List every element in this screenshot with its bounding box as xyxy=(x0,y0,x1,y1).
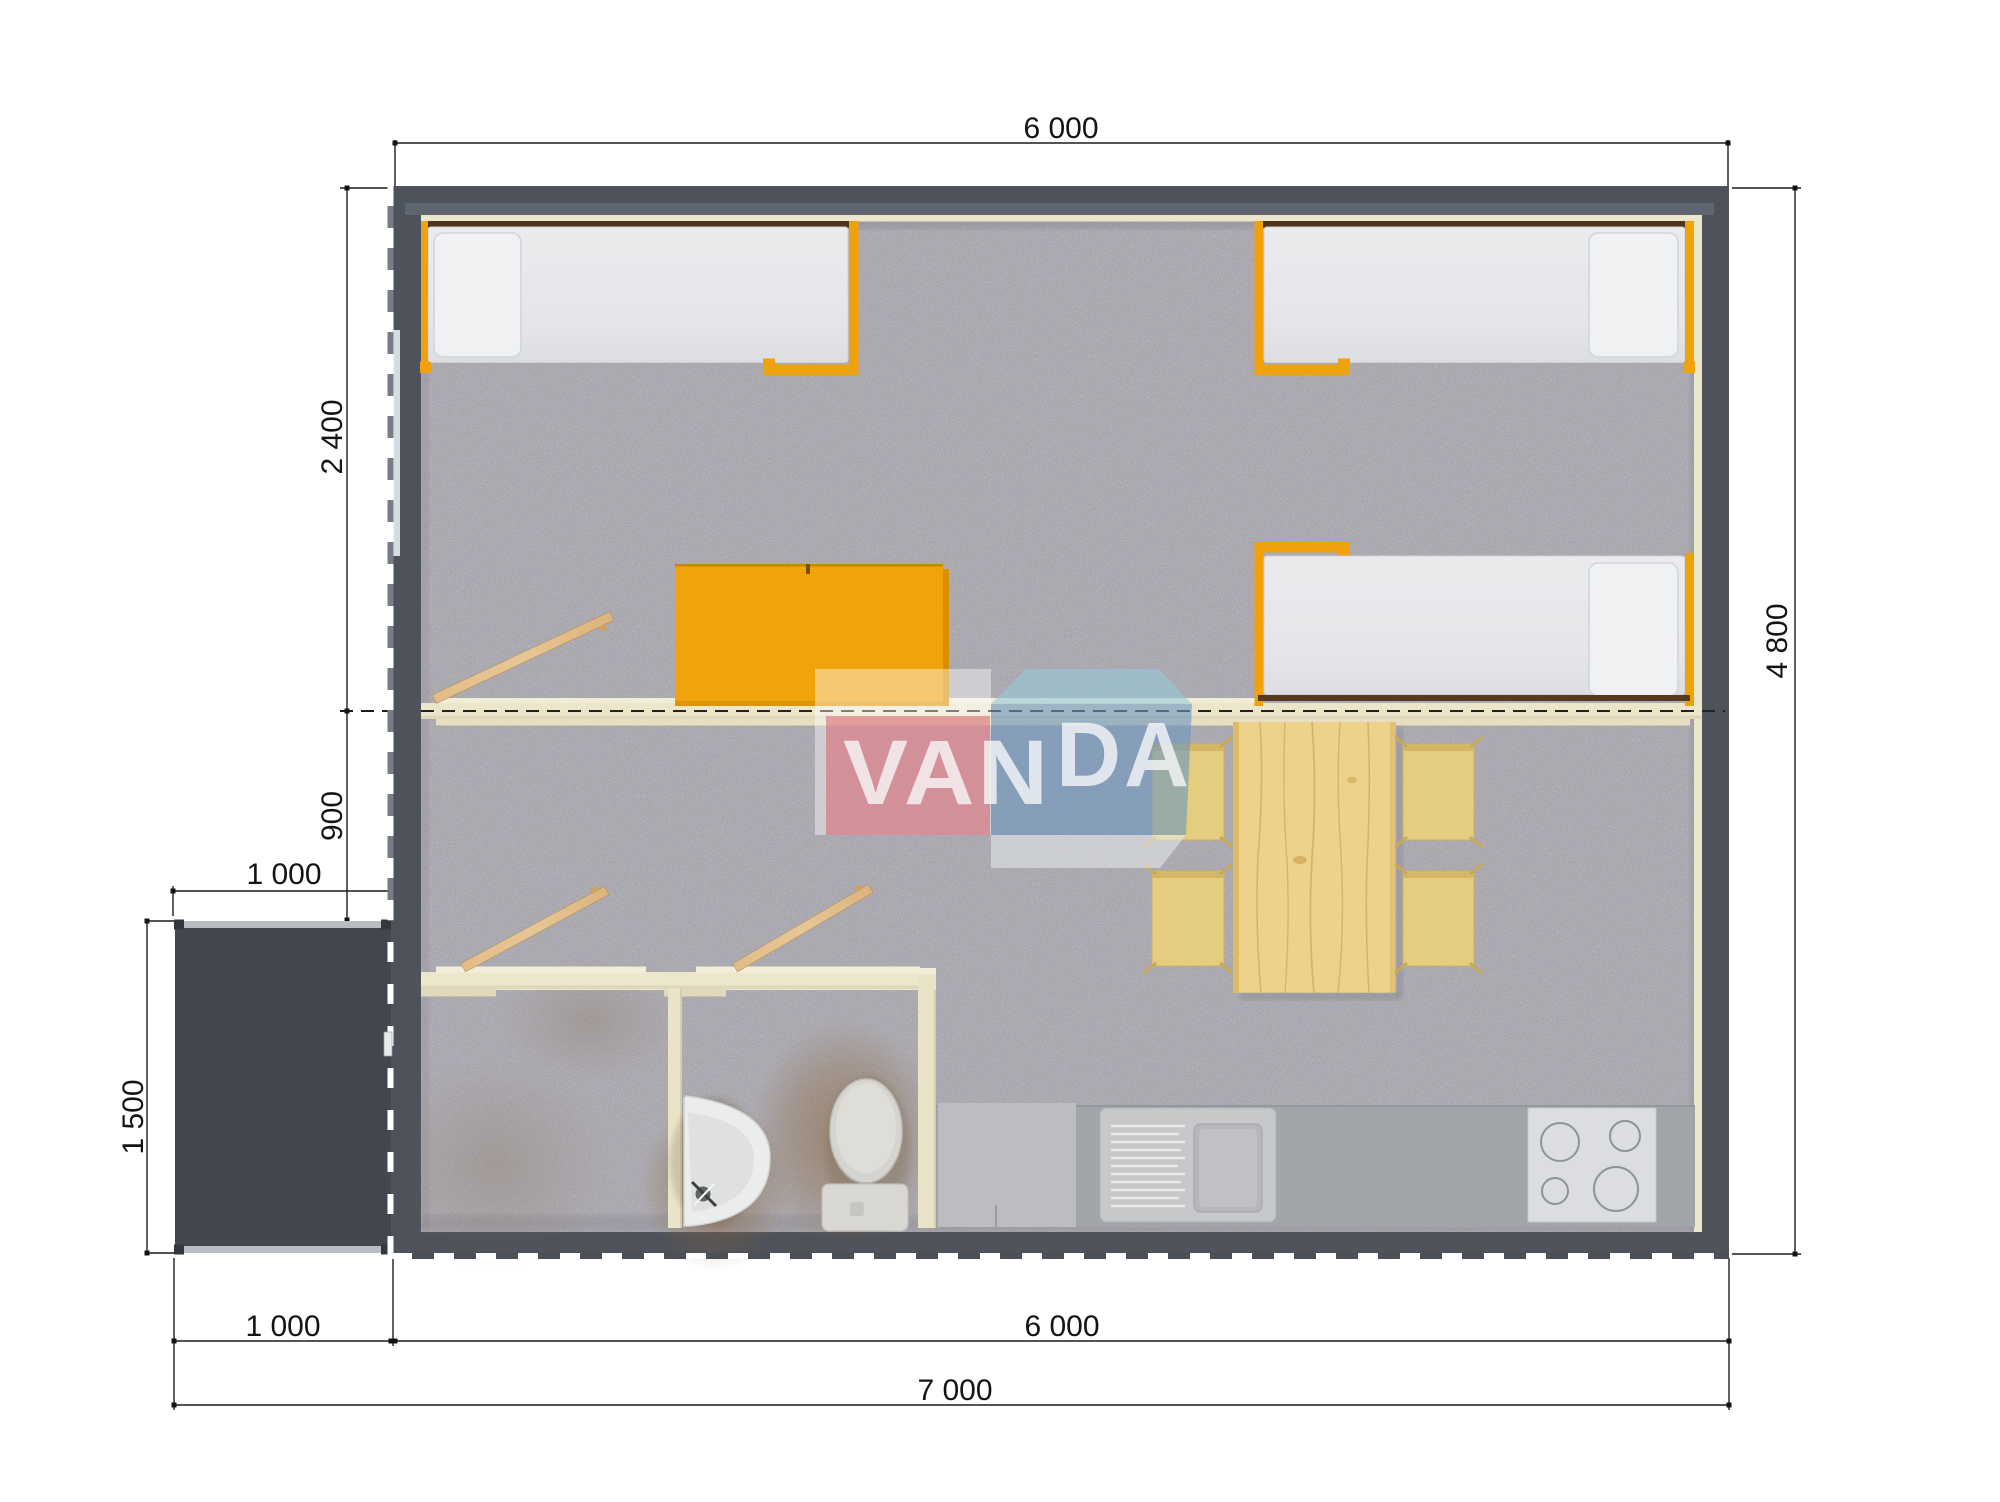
svg-text:1 000: 1 000 xyxy=(246,858,321,891)
svg-text:VAN: VAN xyxy=(843,722,1051,825)
svg-text:900: 900 xyxy=(316,791,349,841)
svg-text:4 800: 4 800 xyxy=(1761,603,1794,678)
svg-text:1 500: 1 500 xyxy=(117,1079,150,1154)
svg-text:2 400: 2 400 xyxy=(316,399,349,474)
svg-text:6 000: 6 000 xyxy=(1024,1310,1099,1343)
svg-text:7 000: 7 000 xyxy=(917,1374,992,1407)
svg-text:DA: DA xyxy=(1056,704,1192,806)
svg-text:1 000: 1 000 xyxy=(245,1310,320,1343)
svg-text:6 000: 6 000 xyxy=(1023,112,1098,145)
